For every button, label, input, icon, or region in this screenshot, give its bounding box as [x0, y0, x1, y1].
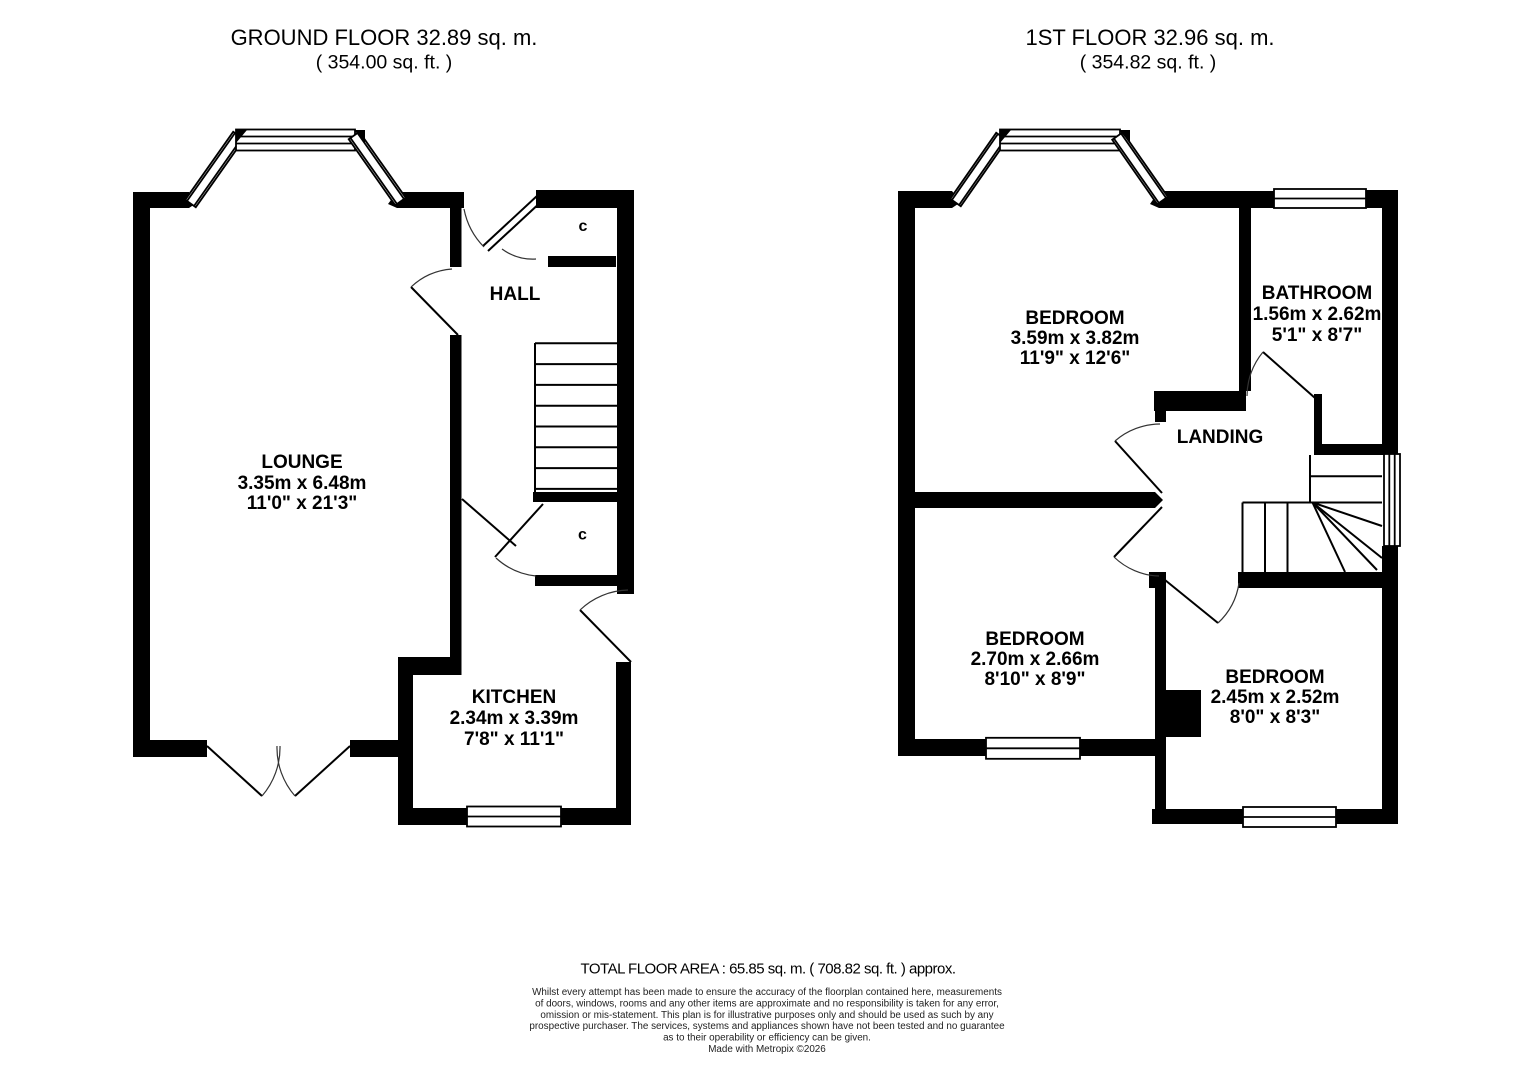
svg-text:BEDROOM: BEDROOM [1225, 667, 1324, 688]
svg-text:BEDROOM: BEDROOM [1025, 308, 1124, 329]
svg-text:2.70m x 2.66m: 2.70m x 2.66m [971, 649, 1100, 670]
svg-text:LANDING: LANDING [1177, 427, 1264, 448]
svg-text:c: c [579, 218, 588, 235]
svg-text:HALL: HALL [490, 284, 541, 305]
svg-text:KITCHEN: KITCHEN [472, 687, 556, 708]
svg-text:11'0" x 21'3": 11'0" x 21'3" [247, 493, 358, 514]
svg-text:LOUNGE: LOUNGE [261, 452, 342, 473]
svg-text:2.45m x 2.52m: 2.45m x 2.52m [1211, 687, 1340, 708]
svg-text:GROUND FLOOR 32.89 sq. m.: GROUND FLOOR 32.89 sq. m. [231, 25, 538, 50]
svg-text:5'1" x 8'7": 5'1" x 8'7" [1272, 325, 1362, 346]
svg-text:1.56m x 2.62m: 1.56m x 2.62m [1253, 304, 1382, 325]
svg-text:3.35m x 6.48m: 3.35m x 6.48m [238, 473, 367, 494]
svg-text:prospective purchaser. The ser: prospective purchaser. The services, sys… [529, 1021, 1005, 1032]
svg-text:( 354.82 sq. ft. ): ( 354.82 sq. ft. ) [1080, 52, 1217, 74]
svg-text:1ST FLOOR 32.96 sq. m.: 1ST FLOOR 32.96 sq. m. [1025, 25, 1274, 50]
svg-text:c: c [578, 527, 587, 544]
svg-text:of doors, windows, rooms and a: of doors, windows, rooms and any other i… [535, 998, 999, 1009]
svg-text:BATHROOM: BATHROOM [1262, 283, 1372, 304]
svg-text:8'10" x 8'9": 8'10" x 8'9" [984, 669, 1085, 690]
svg-text:Whilst every attempt has been: Whilst every attempt has been made to en… [532, 987, 1002, 998]
svg-text:11'9" x 12'6": 11'9" x 12'6" [1020, 348, 1131, 369]
svg-text:2.34m x 3.39m: 2.34m x 3.39m [450, 708, 579, 729]
svg-text:omission or mis-statement. Thi: omission or mis-statement. This plan is … [540, 1010, 993, 1021]
svg-text:as to their operability or eff: as to their operability or efficiency ca… [663, 1033, 871, 1044]
svg-text:7'8" x 11'1": 7'8" x 11'1" [464, 729, 564, 750]
svg-text:( 354.00 sq. ft. ): ( 354.00 sq. ft. ) [316, 52, 453, 74]
svg-text:BEDROOM: BEDROOM [985, 629, 1084, 650]
svg-text:Made with Metropix ©2026: Made with Metropix ©2026 [708, 1044, 826, 1055]
svg-text:8'0" x 8'3": 8'0" x 8'3" [1230, 707, 1320, 728]
svg-text:3.59m x 3.82m: 3.59m x 3.82m [1011, 328, 1140, 349]
svg-text:TOTAL FLOOR AREA : 65.85 sq. m: TOTAL FLOOR AREA : 65.85 sq. m. ( 708.82… [580, 961, 955, 978]
